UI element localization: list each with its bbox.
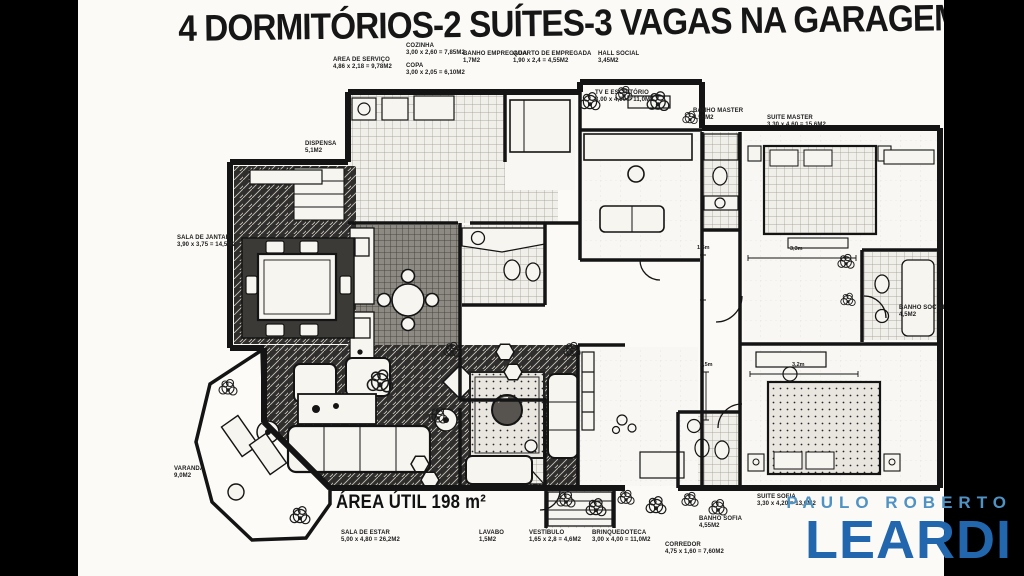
living-rug-set	[470, 372, 544, 458]
right-black-bar	[944, 0, 1024, 576]
sofia-desk	[756, 352, 826, 367]
dim-label-4: 3,2m	[792, 362, 805, 368]
dim-label-3: 1,5m	[700, 362, 713, 368]
room-label-sala-estar: SALA DE ESTAR5,00 x 4,80 = 26,2M2	[341, 530, 400, 544]
dim-label-2: 3,3m	[790, 246, 803, 252]
room-label-varanda: VARANDA9,0M2	[174, 466, 204, 480]
room-label-sala-jantar: SALA DE JANTAR3,90 x 3,75 = 14,5M2	[177, 235, 236, 249]
laundry-appliances	[352, 96, 454, 120]
room-label-vestibulo: VESTÍBULO1,65 x 2,8 = 4,6M2	[529, 530, 581, 544]
floor-plan-drawing	[0, 0, 1024, 576]
dining-table	[258, 254, 336, 320]
room-label-hall-social: HALL SOCIAL3,45M2	[598, 51, 639, 65]
sideboard	[250, 170, 322, 184]
dim-label-1: 1,6m	[697, 245, 710, 251]
room-label-banho-master: BANHO MASTER4,55M2	[693, 108, 743, 122]
room-label-lavabo: LAVABO1,5M2	[479, 530, 504, 544]
room-label-cozinha: COZINHA3,00 x 2,60 = 7,85M2	[406, 43, 465, 57]
master-dresser	[884, 150, 934, 164]
room-label-area-servico: AREA DE SERVIÇO4,86 x 2,18 = 9,78M2	[333, 57, 392, 71]
coffee-table	[298, 394, 376, 424]
room-label-copa: COPA3,00 x 2,05 = 6,10M2	[406, 63, 465, 77]
brand-name-main: LEARDI	[786, 515, 1012, 566]
maid-bed	[510, 100, 570, 152]
listing-image: 4 DORMITÓRIOS-2 SUÍTES-3 VAGAS NA GARAGE…	[0, 0, 1024, 576]
room-label-banho-social: BANHO SOCIAL4,5M2	[899, 305, 947, 319]
left-black-bar	[0, 0, 78, 576]
room-label-banho-sofia: BANHO SOFIA4,55M2	[699, 516, 742, 530]
room-label-brinquedoteca: BRINQUEDOTECA3,00 x 4,00 = 11,0M2	[592, 530, 651, 544]
brand-logo: PAULO ROBERTO LEARDI	[786, 493, 1012, 566]
room-label-suite-master: SUITE MASTER3,30 x 4,60 = 15,6M2	[767, 115, 826, 129]
room-label-quarto-empregada: QUARTO DE EMPREGADA1,90 x 2,4 = 4,55M2	[513, 51, 591, 65]
room-label-corredor: CORREDOR4,75 x 1,60 = 7,60M2	[665, 542, 724, 556]
room-label-tv-escritorio: TV E ESCRITÓRIO3,00 x 4,00 = 11,0M2	[595, 90, 654, 104]
room-label-dispensa: DISPENSA5,1M2	[305, 141, 336, 155]
total-area-label: ÁREA ÚTIL 198 m²	[336, 492, 486, 514]
